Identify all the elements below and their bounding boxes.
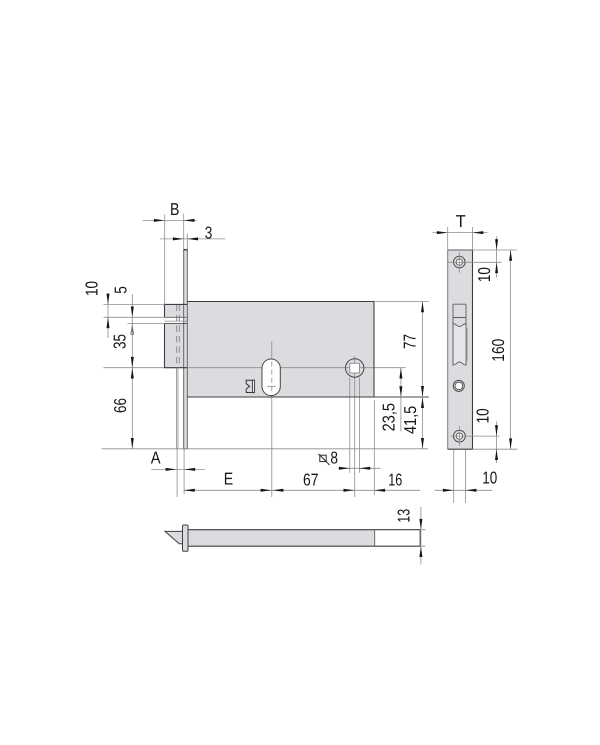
svg-text:A: A (151, 447, 161, 467)
svg-text:E: E (224, 469, 233, 489)
svg-text:5: 5 (111, 286, 131, 294)
svg-text:66: 66 (110, 398, 130, 413)
svg-text:23,5: 23,5 (379, 403, 399, 431)
svg-text:16: 16 (388, 469, 402, 489)
svg-text:B: B (170, 199, 180, 219)
svg-text:67: 67 (303, 469, 319, 489)
svg-text:10: 10 (482, 468, 497, 488)
svg-text:160: 160 (488, 339, 508, 362)
svg-text:10: 10 (474, 267, 494, 282)
svg-text:10: 10 (82, 281, 102, 296)
svg-text:35: 35 (109, 334, 129, 349)
svg-text:77: 77 (400, 334, 420, 349)
svg-text:13: 13 (393, 509, 413, 523)
svg-text:3: 3 (205, 223, 213, 243)
svg-text:8: 8 (330, 448, 338, 468)
svg-text:10: 10 (472, 408, 492, 423)
svg-text:T: T (456, 211, 466, 231)
svg-text:41,5: 41,5 (400, 406, 420, 434)
